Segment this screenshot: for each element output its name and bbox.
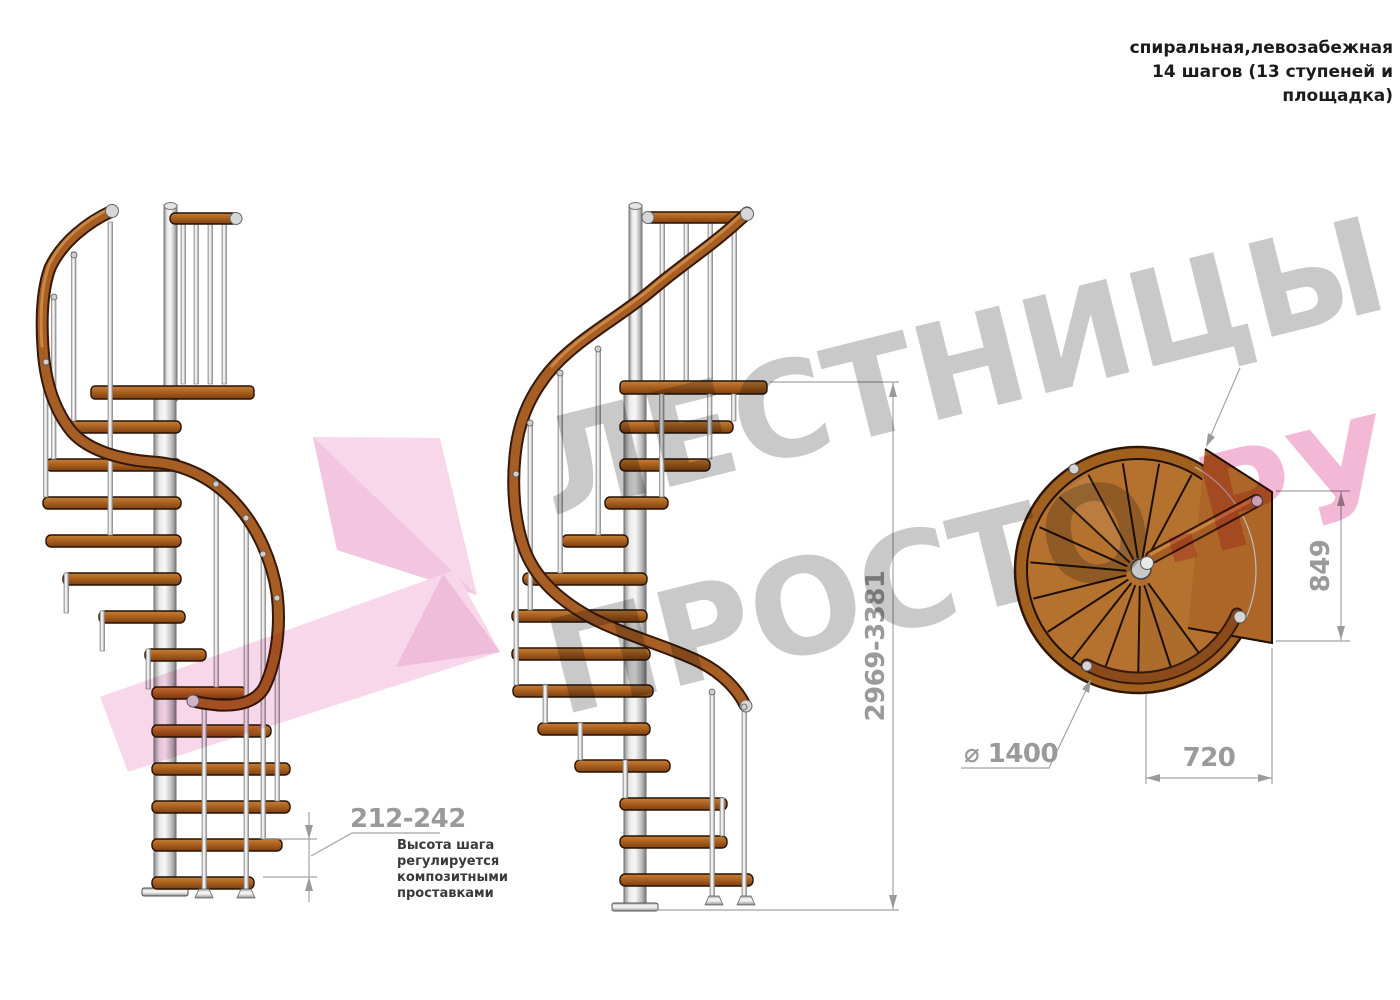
title-line-1: спиральная,левозабежная xyxy=(1130,36,1393,60)
dimension-diameter: ⌀ 1400 xyxy=(961,679,1091,769)
leader-landing-callout xyxy=(1206,368,1240,447)
landing-width-value: 720 xyxy=(1183,743,1236,773)
drawing-canvas: 212-242 2969-3381 849 720 ⌀ 1400 спираль… xyxy=(0,0,1400,1000)
center-platform-railing xyxy=(642,212,748,382)
left-platform-railing xyxy=(170,213,242,385)
note-line-1: Высота шага xyxy=(397,838,508,854)
title-line-2: 14 шагов (13 ступеней и xyxy=(1130,60,1393,84)
total-height-value: 2969-3381 xyxy=(861,570,891,721)
diameter-value: ⌀ 1400 xyxy=(964,739,1058,769)
step-height-value: 212-242 xyxy=(350,804,466,834)
center-staircase-side-view xyxy=(512,203,767,912)
note-line-2: регулируется xyxy=(397,854,508,870)
title-block: спиральная,левозабежная 14 шагов (13 сту… xyxy=(1130,36,1393,108)
left-staircase-side-view xyxy=(41,203,290,899)
dimension-landing-side: 849 xyxy=(1276,491,1350,641)
step-height-note: Высота шага регулируется композитными пр… xyxy=(397,838,508,902)
title-line-3: площадка) xyxy=(1130,84,1393,108)
staircase-technical-drawing: 212-242 2969-3381 849 720 ⌀ 1400 xyxy=(0,0,1400,1000)
landing-side-value: 849 xyxy=(1306,540,1336,593)
note-line-4: проставками xyxy=(397,886,508,902)
top-view xyxy=(1015,447,1272,693)
note-line-3: композитными xyxy=(397,870,508,886)
